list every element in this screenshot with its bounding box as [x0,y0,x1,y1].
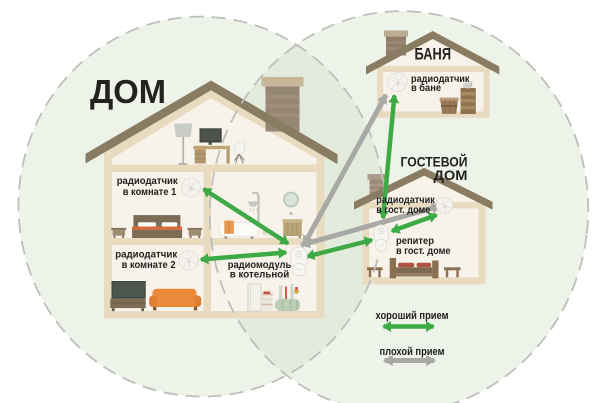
svg-text:ГОСТЕВОЙ: ГОСТЕВОЙ [401,153,468,170]
svg-text:радиодатчик: радиодатчик [115,250,178,261]
svg-text:в гост. доме: в гост. доме [376,205,430,216]
svg-text:БАНЯ: БАНЯ [415,46,452,64]
svg-text:ДОМ: ДОМ [90,73,166,110]
svg-text:в комнате 1: в комнате 1 [123,187,177,198]
svg-text:в комнате 2: в комнате 2 [122,260,176,271]
svg-text:в гост. доме: в гост. доме [396,246,451,257]
svg-text:хороший прием: хороший прием [376,310,449,322]
svg-text:радиодатчик: радиодатчик [117,176,179,187]
svg-text:в бане: в бане [411,82,441,94]
svg-text:ДОМ: ДОМ [434,168,468,184]
svg-text:в котельной: в котельной [230,269,290,280]
svg-text:плохой прием: плохой прием [380,346,445,358]
